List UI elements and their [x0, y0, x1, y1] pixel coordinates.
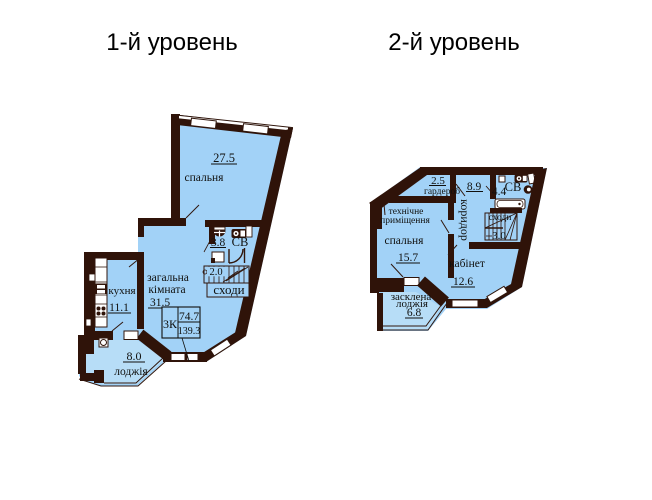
svg-text:гардероб: гардероб	[424, 186, 460, 197]
svg-text:1-й уровень: 1-й уровень	[106, 29, 237, 56]
svg-text:СВ: СВ	[232, 235, 249, 249]
svg-text:3.0: 3.0	[492, 230, 506, 242]
svg-text:СВ: СВ	[505, 180, 522, 194]
svg-text:6.8: 6.8	[407, 307, 422, 319]
svg-text:лоджія: лоджія	[114, 366, 148, 378]
svg-text:8.0: 8.0	[127, 349, 142, 363]
svg-text:15.7: 15.7	[398, 252, 418, 264]
svg-text:3К: 3К	[163, 317, 178, 331]
svg-text:спальня: спальня	[185, 172, 225, 184]
svg-text:приміщення: приміщення	[380, 216, 430, 226]
svg-text:2.0: 2.0	[209, 267, 222, 278]
svg-text:74.7: 74.7	[179, 311, 199, 323]
svg-text:кабінет: кабінет	[449, 258, 485, 270]
svg-text:кухня: кухня	[108, 285, 135, 297]
svg-text:коридор: коридор	[458, 199, 472, 241]
svg-text:спальня: спальня	[385, 235, 425, 247]
svg-text:кімната: кімната	[148, 284, 185, 296]
svg-text:сходи: сходи	[213, 282, 244, 297]
svg-text:сходи: сходи	[489, 213, 512, 223]
svg-text:27.5: 27.5	[213, 151, 235, 165]
svg-text:загальна: загальна	[147, 272, 189, 284]
svg-text:139.3: 139.3	[178, 326, 201, 337]
svg-text:2-й уровень: 2-й уровень	[388, 29, 519, 56]
svg-text:12.6: 12.6	[453, 276, 473, 288]
svg-text:11.1: 11.1	[109, 302, 129, 314]
